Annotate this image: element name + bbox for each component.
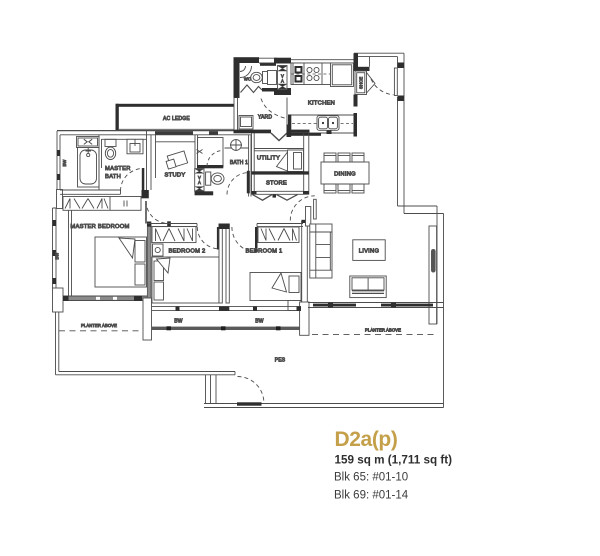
svg-text:STUDY: STUDY	[165, 173, 186, 179]
svg-text:BW: BW	[174, 319, 183, 325]
svg-text:SHOE: SHOE	[358, 77, 363, 89]
svg-text:A: A	[198, 180, 201, 185]
svg-text:BATH: BATH	[105, 174, 121, 180]
svg-text:Blk 65: #01-10: Blk 65: #01-10	[334, 472, 408, 484]
svg-text:MASTER BEDROOM: MASTER BEDROOM	[70, 224, 129, 230]
svg-text:KITCHEN: KITCHEN	[308, 101, 335, 107]
svg-text:159 sq m (1,711 sq ft): 159 sq m (1,711 sq ft)	[335, 454, 453, 467]
svg-text:UTILITY: UTILITY	[257, 156, 280, 162]
svg-text:A: A	[281, 79, 284, 84]
svg-text:YARD: YARD	[258, 115, 273, 121]
svg-text:BW: BW	[255, 319, 264, 325]
svg-text:LIVING: LIVING	[359, 249, 380, 255]
svg-text:BATH 1: BATH 1	[230, 160, 248, 166]
svg-text:BEDROOM 1: BEDROOM 1	[245, 249, 282, 255]
svg-text:D2a(p): D2a(p)	[335, 428, 398, 451]
svg-text:AC LEDGE: AC LEDGE	[163, 116, 190, 122]
svg-text:BW: BW	[62, 160, 67, 167]
svg-text:PLANTER ABOVE: PLANTER ABOVE	[365, 328, 401, 333]
svg-text:BW: BW	[55, 253, 60, 260]
svg-text:WC: WC	[244, 77, 251, 82]
svg-text:DINING: DINING	[334, 172, 356, 178]
svg-text:STORE: STORE	[266, 181, 287, 187]
svg-text:PES: PES	[275, 358, 286, 364]
svg-text:BEDROOM 2: BEDROOM 2	[168, 249, 205, 255]
svg-text:Blk 69: #01-14: Blk 69: #01-14	[334, 490, 409, 502]
svg-text:PLANTER ABOVE: PLANTER ABOVE	[81, 323, 117, 328]
svg-text:MASTER: MASTER	[105, 166, 131, 172]
